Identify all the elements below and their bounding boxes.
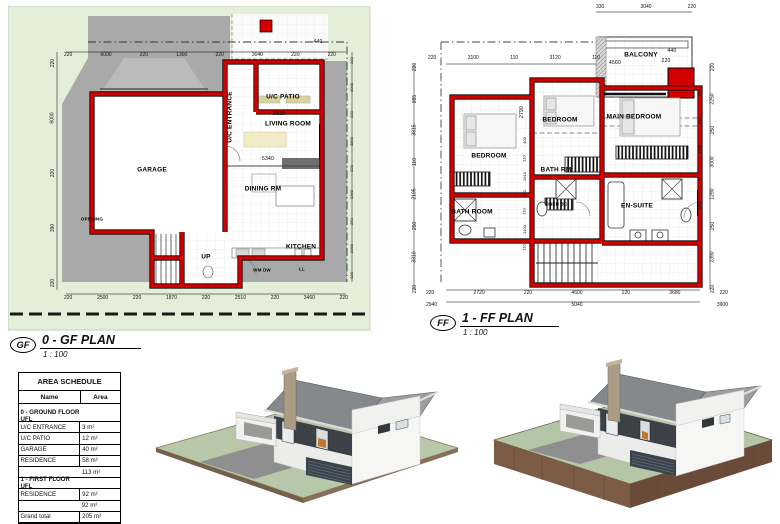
row-area: 113 m² — [80, 467, 120, 477]
balcony-red-column — [668, 68, 694, 98]
ff-reference-bubble: FF — [430, 315, 456, 331]
dimension-value: 6000 — [50, 112, 56, 123]
dimension-value: 6000 — [100, 52, 111, 58]
row-area: 40 m² — [80, 445, 120, 455]
dimension-value: 3460 — [304, 295, 315, 301]
toilet — [203, 266, 213, 278]
gf-dim-3920: 3920 — [273, 111, 285, 117]
dimension-value: 250 — [412, 221, 418, 229]
table-row: U/C PATIO 12 m² — [19, 433, 120, 444]
dimension-value: 110 — [592, 55, 600, 61]
table-row: 1 - FIRST FLOOR UFL — [19, 478, 120, 489]
dimension-value: 3000 — [349, 83, 354, 92]
ff-dim-row-bottom: 220272022046002203680220 — [426, 290, 728, 296]
dimension-value: 220 — [349, 57, 354, 64]
ff-plan-title: 1 - FF PLAN — [460, 311, 559, 327]
dimension-value: 3100 — [468, 55, 479, 61]
area-schedule-title: AREA SCHEDULE — [19, 373, 120, 391]
gf-dim-row-bottom: 2202500220187022025102203460220 — [64, 295, 348, 301]
gf-room-label-kitchen: KITCHEN — [286, 244, 316, 251]
gf-dim-440: 440 — [314, 39, 323, 45]
dimension-value: 220 — [50, 279, 56, 287]
row-name: RESIDENCE — [19, 489, 80, 499]
dimension-value: 220 — [622, 290, 630, 296]
dimension-value: 220 — [50, 59, 56, 67]
gf-dim-col-left: 2206000220390220 — [48, 60, 58, 286]
dimension-value: 1300 — [176, 52, 187, 58]
dimension-value: 220 — [710, 285, 716, 293]
ff-room-label-balcony: BALCONY — [624, 52, 658, 59]
ff-dim-row-top-outer: 3303040220 — [596, 4, 696, 10]
dimension-value: 2390 — [349, 190, 354, 199]
row-area: 3 m² — [80, 422, 120, 432]
dimension-value: 1000 — [697, 201, 702, 210]
gf-room-label-garage: GARAGE — [137, 167, 167, 174]
row-area: 92 m² — [80, 501, 120, 511]
area-schedule-rows: 0 - GROUND FLOOR UFL U/C ENTRANCE 3 m² U… — [19, 404, 120, 523]
column-header-name: Name — [19, 391, 81, 403]
dimension-value: 1100 — [521, 225, 526, 234]
dimension-value: 250 — [710, 126, 716, 134]
dimension-value: 3310 — [412, 252, 418, 263]
table-row: GARAGE 40 m² — [19, 445, 120, 456]
area-schedule-table: AREA SCHEDULE Name Area 0 - GROUND FLOOR… — [18, 372, 121, 524]
gf-dim-row-top: 220600022013002203040220220 — [64, 52, 336, 58]
dimension-value: 1290 — [710, 188, 716, 199]
table-row: U/C ENTRANCE 3 m² — [19, 422, 120, 433]
gf-label-up: UP — [201, 254, 210, 261]
dimension-value: 400 — [522, 191, 527, 198]
drawing-sheet: { "colors": { "wall_red": "#d40000", "si… — [0, 0, 780, 516]
render-3d-view-1 — [148, 352, 466, 516]
ff-room-label-bedroom-mid: BEDROOM — [542, 117, 577, 124]
ff-dim-col-right-inner: 60011010001101000 — [694, 90, 704, 208]
dimension-value: 250 — [349, 218, 354, 225]
dimension-value: 2500 — [97, 295, 108, 301]
dimension-value: 110 — [696, 174, 701, 180]
gf-plan-title: 0 - GF PLAN — [40, 333, 141, 349]
window — [720, 414, 730, 424]
table-row: 92 m² — [19, 501, 120, 512]
dimension-value: 1870 — [166, 295, 177, 301]
dimension-value: 220 — [349, 111, 354, 118]
ff-room-label-main-bedroom: MAIN BEDROOM — [607, 114, 662, 121]
dimension-value: 4600 — [571, 290, 582, 296]
dimension-value: 3000 — [710, 157, 716, 168]
ff-dim-220: 220 — [662, 58, 671, 64]
toilet — [459, 225, 471, 235]
dimension-value: 3815 — [412, 125, 418, 136]
dimension-value: 3900 — [717, 302, 728, 308]
dimension-value: 2940 — [426, 302, 437, 308]
dimension-value: 220 — [428, 55, 436, 61]
ff-dim-4560: 4560 — [609, 60, 621, 66]
ff-dim-440: 440 — [668, 48, 677, 54]
gf-room-label-dining: DINING RM — [245, 186, 281, 193]
dimension-value: 3680 — [669, 290, 680, 296]
ff-dim-col-left: 220895381511021952503310220 — [410, 64, 420, 292]
table-row: Grand total 205 m² — [19, 512, 120, 523]
dimension-value: 390 — [50, 224, 56, 232]
row-area: 92 m² — [80, 489, 120, 499]
kitchen-island — [276, 186, 314, 206]
gf-room-label-living: LIVING ROOM — [265, 121, 311, 128]
row-name — [19, 501, 80, 511]
ff-dim-col-right: 2202250250300012902502390220 — [708, 64, 718, 292]
dimension-value: 5040 — [571, 302, 582, 308]
dimension-value: 2510 — [235, 295, 246, 301]
chimney — [608, 363, 620, 422]
dimension-value: 330 — [596, 4, 604, 10]
ff-room-label-linen: LINEN BC — [545, 202, 568, 207]
ff-room-label-en-suite: EN-SUITE — [621, 203, 653, 210]
dimension-value: 1000 — [697, 145, 702, 154]
ff-plan-scale: 1 : 100 — [460, 328, 559, 337]
dimension-value: 110 — [521, 209, 526, 215]
dimension-value: 220 — [50, 169, 56, 177]
dimension-value: 220 — [215, 52, 223, 58]
dimension-value: 220 — [133, 295, 141, 301]
dimension-value: 2090 — [349, 244, 354, 253]
dimension-value: 220 — [64, 295, 72, 301]
ff-room-label-bedroom-left: BEDROOM — [471, 153, 506, 160]
render-3d-view-2 — [488, 352, 778, 516]
row-name: Grand total — [19, 512, 80, 522]
gf-label-opening: OPENING — [81, 217, 103, 222]
dimension-value: 220 — [412, 63, 418, 71]
table-row: RESIDENCE 58 m² — [19, 456, 120, 467]
dimension-value: 1910 — [522, 172, 527, 181]
dimension-value: 220 — [688, 4, 696, 10]
dimension-value: 220 — [340, 295, 348, 301]
row-area — [80, 478, 120, 488]
dimension-value: 400 — [522, 137, 527, 144]
ff-room-label-bath-room: BATH ROOM — [451, 209, 492, 216]
dimension-value: 110 — [521, 155, 526, 161]
dimension-value: 110 — [412, 158, 418, 166]
dimension-value: 220 — [720, 290, 728, 296]
gf-dim-col-right: 2203000220389022023902502090220 — [346, 58, 356, 278]
dimension-value: 220 — [412, 285, 418, 293]
dimension-value: 3890 — [349, 137, 354, 146]
dimension-value: 220 — [291, 52, 299, 58]
dimension-value: 220 — [426, 290, 434, 296]
ff-dim-col-center: 40011019104001101100110 — [519, 138, 529, 250]
ff-room-label-bath-rm: BATH RM — [541, 167, 572, 174]
gf-dim-5340: 5340 — [262, 156, 274, 162]
dimension-value: 220 — [349, 165, 354, 172]
row-area — [80, 411, 120, 421]
dimension-value: 3040 — [252, 52, 263, 58]
dimension-value: 220 — [271, 295, 279, 301]
row-name: 0 - GROUND FLOOR UFL — [19, 411, 80, 421]
dimension-value: 2195 — [412, 188, 418, 199]
dimension-value: 110 — [510, 55, 518, 61]
gf-label-ll: LL — [299, 267, 305, 272]
row-name: U/C ENTRANCE — [19, 422, 80, 432]
ff-dim-row-bottom-totals: 294050403900 — [426, 302, 728, 308]
row-name: RESIDENCE — [19, 456, 80, 466]
row-area: 205 m² — [80, 512, 120, 522]
dimension-value: 220 — [328, 52, 336, 58]
dimension-value: 220 — [64, 52, 72, 58]
ff-dim-2790: 2790 — [519, 106, 525, 118]
gf-label-wm-dw: WM DW — [253, 268, 271, 273]
table-row: RESIDENCE 92 m² — [19, 489, 120, 500]
ff-dim-row-top: 22031001103120110 — [428, 55, 600, 61]
dimension-value: 2720 — [474, 290, 485, 296]
row-area: 12 m² — [80, 433, 120, 443]
row-name: GARAGE — [19, 445, 80, 455]
dimension-value: 110 — [521, 244, 526, 250]
dimension-value: 110 — [696, 118, 701, 124]
gf-room-label-patio: U/C PATIO — [266, 94, 300, 101]
table-row: 0 - GROUND FLOOR UFL — [19, 411, 120, 422]
gf-reference-bubble: GF — [10, 337, 36, 353]
chimney — [284, 371, 296, 430]
dimension-value: 220 — [140, 52, 148, 58]
dimension-value: 220 — [524, 290, 532, 296]
row-name: 1 - FIRST FLOOR UFL — [19, 478, 80, 488]
area-schedule-header: Name Area — [19, 391, 120, 404]
dimension-value: 2250 — [710, 93, 716, 104]
row-name: U/C PATIO — [19, 433, 80, 443]
dimension-value: 3040 — [640, 4, 651, 10]
dimension-value: 220 — [202, 295, 210, 301]
dimension-value: 220 — [349, 272, 354, 279]
dimension-value: 2390 — [710, 252, 716, 263]
dimension-value: 250 — [710, 221, 716, 229]
gf-plan-scale: 1 : 100 — [40, 350, 141, 359]
dimension-value: 3120 — [550, 55, 561, 61]
dimension-value: 600 — [697, 89, 702, 96]
column-header-area: Area — [81, 391, 120, 403]
dimension-value: 895 — [412, 95, 418, 103]
dimension-value: 220 — [710, 63, 716, 71]
gf-room-label-entrance: U/C ENTRANCE — [227, 91, 234, 143]
sofa — [282, 158, 322, 169]
row-area: 58 m² — [80, 456, 120, 466]
ff-plan-title-block: FF 1 - FF PLAN 1 : 100 — [430, 311, 559, 337]
gf-plan-title-block: GF 0 - GF PLAN 1 : 100 — [10, 333, 141, 359]
entrance-post — [260, 20, 272, 32]
